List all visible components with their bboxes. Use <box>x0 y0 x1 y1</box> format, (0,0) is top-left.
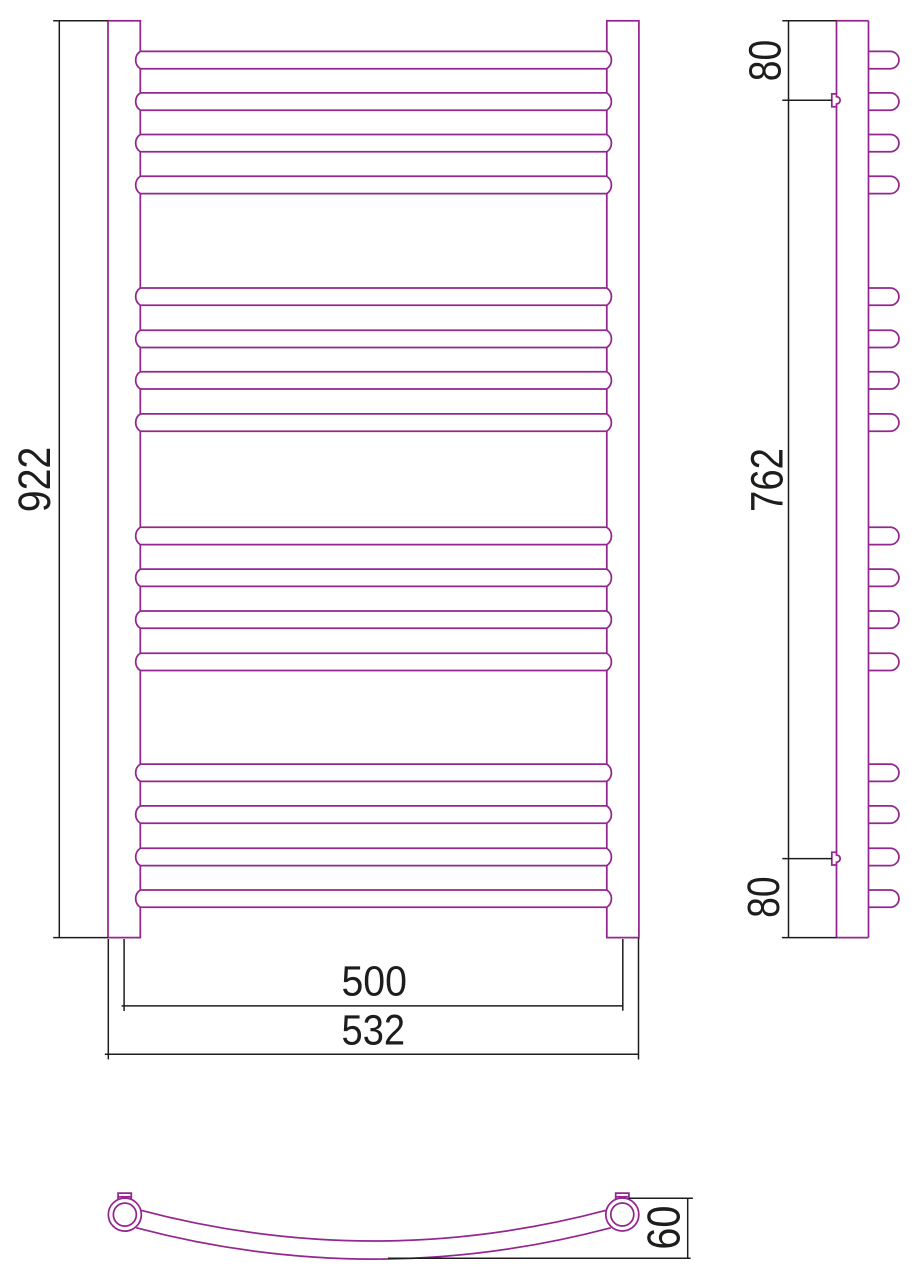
svg-text:80: 80 <box>739 40 790 82</box>
svg-text:922: 922 <box>9 447 60 513</box>
svg-text:500: 500 <box>341 958 407 1005</box>
svg-text:60: 60 <box>638 1206 690 1250</box>
svg-text:762: 762 <box>742 448 793 512</box>
svg-text:80: 80 <box>738 876 789 918</box>
svg-text:532: 532 <box>342 1007 406 1054</box>
